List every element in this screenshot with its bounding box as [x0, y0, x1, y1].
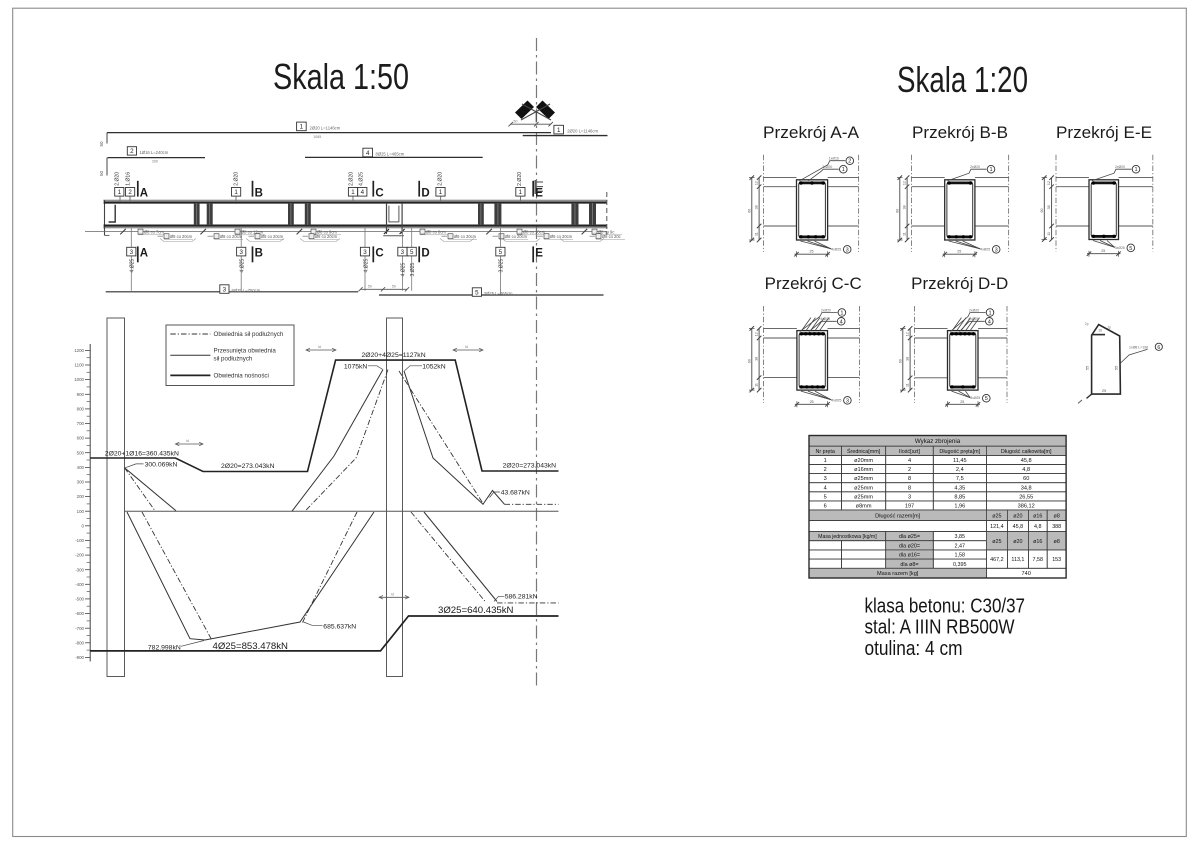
svg-text:dla ø8=: dla ø8=: [900, 562, 918, 568]
svg-text:38: 38: [1047, 205, 1051, 209]
svg-text:1.Ø16: 1.Ø16: [125, 172, 131, 186]
svg-text:1: 1: [351, 189, 355, 196]
svg-text:3: 3: [824, 476, 827, 482]
svg-text:klasa betonu: C30/37: klasa betonu: C30/37: [865, 594, 1026, 617]
svg-text:153: 153: [1052, 557, 1061, 563]
svg-text:2: 2: [848, 159, 851, 165]
svg-text:Id: Id: [465, 345, 468, 349]
svg-text:11: 11: [755, 383, 759, 387]
svg-text:38: 38: [903, 205, 907, 209]
svg-text:8Ø25 L=750cm: 8Ø25 L=750cm: [232, 288, 261, 293]
svg-text:dla ø16=: dla ø16=: [899, 553, 920, 559]
svg-text:1085: 1085: [313, 135, 321, 139]
svg-text:A: A: [140, 187, 148, 199]
svg-text:3: 3: [239, 249, 243, 256]
svg-text:4xØ25: 4xØ25: [831, 247, 841, 251]
svg-text:4: 4: [361, 189, 365, 196]
svg-text:2xØ20: 2xØ20: [969, 308, 979, 312]
svg-text:121,4: 121,4: [990, 524, 1004, 530]
svg-text:2xØ20: 2xØ20: [821, 308, 831, 312]
svg-text:Ø8 co 20cm: Ø8 co 20cm: [505, 234, 528, 239]
svg-text:500: 500: [77, 450, 85, 455]
svg-text:2: 2: [824, 467, 827, 473]
svg-text:5: 5: [824, 495, 827, 501]
svg-text:1xØ16: 1xØ16: [829, 157, 839, 161]
svg-text:400: 400: [77, 465, 85, 470]
svg-text:25: 25: [960, 400, 964, 404]
svg-text:2xØ20: 2xØ20: [970, 165, 980, 169]
svg-text:55: 55: [1086, 366, 1090, 370]
svg-text:11: 11: [1047, 232, 1051, 236]
svg-text:1: 1: [439, 189, 443, 196]
svg-text:12: 12: [903, 181, 907, 185]
svg-text:197: 197: [905, 504, 914, 510]
svg-text:4,35: 4,35: [954, 485, 965, 491]
svg-text:45,8: 45,8: [1021, 458, 1032, 464]
svg-text:Ø8 co 20cm: Ø8 co 20cm: [170, 234, 193, 239]
svg-text:Skala 1:50: Skala 1:50: [273, 56, 409, 97]
svg-text:4,8: 4,8: [1034, 524, 1042, 530]
svg-text:1075kN: 1075kN: [344, 363, 368, 370]
svg-text:ø25: ø25: [992, 513, 1001, 519]
svg-text:4,8: 4,8: [1022, 467, 1030, 473]
svg-text:3.Ø25: 3.Ø25: [499, 258, 505, 272]
svg-text:-200: -200: [75, 553, 84, 558]
svg-text:Masa jednostkowa [kg/m]: Masa jednostkowa [kg/m]: [818, 534, 877, 540]
svg-text:Przekrój D-D: Przekrój D-D: [911, 275, 1008, 293]
svg-text:ø8mm: ø8mm: [856, 504, 872, 510]
svg-text:1200: 1200: [74, 348, 84, 353]
svg-text:1: 1: [824, 458, 827, 464]
svg-text:10: 10: [1098, 329, 1102, 333]
svg-text:55: 55: [1114, 366, 1118, 370]
svg-text:4Ø25=853.478kN: 4Ø25=853.478kN: [213, 641, 289, 652]
svg-text:2xØ20: 2xØ20: [822, 165, 832, 169]
svg-text:7,5: 7,5: [956, 476, 964, 482]
svg-text:3: 3: [223, 286, 227, 293]
svg-text:Obwiednia sił podłużnych: Obwiednia sił podłużnych: [214, 331, 284, 338]
svg-text:8,85: 8,85: [954, 495, 965, 501]
svg-text:Id: Id: [391, 593, 394, 597]
svg-text:Ø8 co 7cm: Ø8 co 7cm: [144, 230, 164, 235]
svg-text:4xØ25: 4xØ25: [968, 317, 978, 321]
svg-text:ø25mm: ø25mm: [854, 495, 873, 501]
svg-text:3Ø25 L=465cm: 3Ø25 L=465cm: [484, 291, 513, 296]
svg-text:38: 38: [755, 205, 759, 209]
svg-text:2Ø20 L=1146cm: 2Ø20 L=1146cm: [310, 125, 341, 130]
svg-text:-300: -300: [75, 567, 84, 572]
svg-text:685.637kN: 685.637kN: [323, 623, 356, 630]
svg-text:1000: 1000: [74, 377, 84, 382]
svg-text:34,8: 34,8: [1021, 485, 1032, 491]
svg-text:467,2: 467,2: [990, 557, 1004, 563]
svg-text:4xØ25: 4xØ25: [831, 398, 841, 402]
svg-text:Przekrój C-C: Przekrój C-C: [765, 275, 862, 293]
svg-text:-500: -500: [75, 597, 84, 602]
svg-text:300.069kN: 300.069kN: [145, 461, 178, 468]
svg-text:2.Ø20: 2.Ø20: [349, 172, 355, 186]
svg-text:Ø8 co 8cm: Ø8 co 8cm: [426, 230, 446, 235]
svg-text:4xØ25: 4xØ25: [820, 317, 830, 321]
svg-text:Długość pręta[m]: Długość pręta[m]: [939, 449, 980, 455]
svg-text:Nr pręta: Nr pręta: [815, 449, 834, 455]
svg-text:50: 50: [368, 284, 372, 288]
svg-text:50: 50: [514, 120, 518, 124]
svg-text:8Ø25 L=465cm: 8Ø25 L=465cm: [376, 151, 405, 156]
svg-text:1: 1: [234, 189, 238, 196]
svg-text:4.Ø25: 4.Ø25: [130, 258, 136, 272]
svg-text:2p: 2p: [1108, 325, 1112, 329]
svg-text:6: 6: [1157, 345, 1160, 351]
svg-text:800: 800: [77, 407, 85, 412]
svg-text:3: 3: [995, 247, 998, 253]
svg-text:Przekrój E-E: Przekrój E-E: [1056, 124, 1152, 142]
svg-text:900: 900: [77, 392, 85, 397]
svg-text:45,8: 45,8: [1013, 524, 1024, 530]
svg-text:3: 3: [130, 249, 134, 256]
svg-text:1: 1: [300, 124, 304, 131]
svg-text:60: 60: [898, 359, 902, 363]
svg-text:ø16: ø16: [1033, 539, 1042, 545]
svg-text:E: E: [535, 187, 543, 199]
svg-text:300: 300: [77, 480, 85, 485]
svg-text:5: 5: [985, 396, 988, 402]
svg-text:3xØ25: 3xØ25: [970, 396, 980, 400]
svg-text:4.Ø25: 4.Ø25: [401, 262, 407, 276]
svg-text:3xØ25: 3xØ25: [1115, 246, 1125, 250]
svg-text:2Ø20+1Ø16=360.435kN: 2Ø20+1Ø16=360.435kN: [105, 451, 179, 458]
svg-text:Długość całkowita[m]: Długość całkowita[m]: [1001, 449, 1052, 455]
svg-text:60: 60: [1023, 476, 1029, 482]
svg-text:Obwiednia nośności: Obwiednia nośności: [214, 373, 269, 380]
svg-text:11,45: 11,45: [953, 458, 967, 464]
svg-text:1: 1: [519, 189, 523, 196]
svg-text:700: 700: [77, 421, 85, 426]
svg-text:B: B: [255, 187, 263, 199]
svg-text:4.Ø25: 4.Ø25: [359, 172, 365, 186]
svg-text:25: 25: [1102, 389, 1106, 393]
svg-text:Średnica[mm]: Średnica[mm]: [847, 447, 881, 455]
svg-text:0,395: 0,395: [953, 562, 967, 568]
svg-text:1: 1: [988, 311, 991, 317]
svg-text:11: 11: [906, 383, 910, 387]
svg-text:Wykaz zbrojenia: Wykaz zbrojenia: [915, 438, 961, 445]
svg-text:200: 200: [77, 494, 85, 499]
svg-text:2: 2: [908, 467, 911, 473]
svg-text:E: E: [535, 247, 543, 259]
svg-text:dla ø25=: dla ø25=: [899, 534, 920, 540]
svg-text:Długość razem[m]: Długość razem[m]: [875, 513, 921, 519]
svg-text:386,12: 386,12: [1018, 504, 1035, 510]
svg-text:ø8: ø8: [1054, 513, 1060, 519]
svg-text:3: 3: [846, 398, 849, 404]
svg-text:ø16: ø16: [1033, 513, 1042, 519]
svg-text:2Ø20+4Ø25=1127kN: 2Ø20+4Ø25=1127kN: [362, 352, 426, 359]
svg-text:25: 25: [1101, 249, 1105, 253]
svg-text:113,1: 113,1: [1011, 557, 1024, 563]
svg-text:D: D: [421, 187, 429, 199]
svg-text:-800: -800: [75, 640, 84, 645]
svg-text:1: 1: [118, 189, 122, 196]
svg-text:3: 3: [363, 249, 367, 256]
svg-text:Przesunięta obwiednia: Przesunięta obwiednia: [214, 348, 277, 355]
svg-text:2.Ø20: 2.Ø20: [437, 172, 443, 186]
svg-text:-100: -100: [75, 538, 84, 543]
svg-text:A: A: [140, 247, 148, 259]
svg-text:D: D: [421, 247, 429, 259]
svg-text:12: 12: [755, 332, 759, 336]
svg-text:25: 25: [957, 250, 961, 254]
svg-text:1Ø16 L=240cm: 1Ø16 L=240cm: [140, 150, 169, 155]
svg-text:C: C: [375, 187, 383, 199]
svg-text:2Ø20 L=1146cm: 2Ø20 L=1146cm: [567, 128, 598, 133]
svg-text:4.Ø25: 4.Ø25: [240, 258, 246, 272]
svg-text:11: 11: [755, 232, 759, 236]
svg-text:-900: -900: [75, 655, 84, 660]
svg-text:60: 60: [1040, 209, 1044, 213]
svg-text:2p: 2p: [1085, 322, 1089, 326]
svg-text:Przekrój A-A: Przekrój A-A: [763, 124, 859, 142]
svg-text:Ø8 co 20cm: Ø8 co 20cm: [550, 234, 573, 239]
svg-text:2: 2: [128, 189, 132, 196]
svg-text:1100: 1100: [75, 363, 85, 368]
svg-text:1: 1: [989, 167, 992, 173]
svg-text:1: 1: [842, 167, 845, 173]
svg-text:1,58: 1,58: [955, 553, 966, 559]
svg-text:Ø8 co 20cm: Ø8 co 20cm: [220, 234, 243, 239]
svg-text:4: 4: [840, 319, 843, 325]
svg-text:60: 60: [747, 209, 751, 213]
svg-text:4.Ø25: 4.Ø25: [363, 258, 369, 272]
svg-text:1: 1: [557, 127, 561, 134]
svg-text:740: 740: [1022, 571, 1031, 577]
svg-text:Ø8 co 20cm: Ø8 co 20cm: [315, 234, 338, 239]
svg-text:25: 25: [810, 250, 814, 254]
svg-text:Id: Id: [186, 439, 189, 443]
svg-text:2xØ20: 2xØ20: [1115, 165, 1125, 169]
svg-text:3.Ø25: 3.Ø25: [410, 262, 416, 276]
svg-text:Ø8 co 20cm: Ø8 co 20cm: [261, 234, 284, 239]
svg-text:100: 100: [77, 509, 85, 514]
svg-text:2.Ø20: 2.Ø20: [233, 172, 239, 186]
svg-text:11: 11: [903, 232, 907, 236]
svg-text:3: 3: [908, 495, 911, 501]
svg-text:12: 12: [906, 332, 910, 336]
svg-text:ø8: ø8: [1054, 539, 1060, 545]
svg-text:sił podłużnych: sił podłużnych: [214, 356, 253, 363]
svg-text:Masa razem [kg]: Masa razem [kg]: [877, 571, 919, 577]
svg-text:8: 8: [908, 485, 911, 491]
svg-text:Ø8 co 20c: Ø8 co 20c: [602, 234, 621, 239]
svg-text:2,4: 2,4: [956, 467, 964, 473]
svg-text:586.281kN: 586.281kN: [505, 594, 538, 601]
svg-text:60: 60: [895, 209, 899, 213]
svg-text:4: 4: [824, 485, 827, 491]
svg-text:4: 4: [366, 150, 370, 157]
svg-text:2,47: 2,47: [955, 543, 966, 549]
svg-text:12: 12: [1047, 181, 1051, 185]
svg-text:50: 50: [99, 141, 104, 147]
svg-text:782.998kN: 782.998kN: [148, 644, 181, 651]
svg-text:3Ø25=640.435kN: 3Ø25=640.435kN: [438, 605, 514, 616]
svg-text:38: 38: [755, 357, 759, 361]
svg-text:25: 25: [810, 400, 814, 404]
svg-text:2Ø20=273.043kN: 2Ø20=273.043kN: [221, 463, 275, 470]
svg-text:ø25: ø25: [992, 539, 1001, 545]
svg-text:4xØ25: 4xØ25: [980, 247, 990, 251]
svg-text:ø16mm: ø16mm: [854, 467, 873, 473]
svg-text:Skala 1:20: Skala 1:20: [897, 59, 1028, 100]
svg-text:5: 5: [410, 249, 414, 256]
svg-text:12: 12: [755, 181, 759, 185]
svg-text:5: 5: [1129, 246, 1132, 252]
svg-text:50: 50: [392, 284, 396, 288]
svg-text:Ilość[szt]: Ilość[szt]: [899, 449, 920, 455]
svg-text:1052kN: 1052kN: [422, 363, 446, 370]
svg-text:600: 600: [77, 436, 85, 441]
svg-text:4: 4: [988, 319, 991, 325]
svg-text:Przekrój B-B: Przekrój B-B: [912, 124, 1008, 142]
svg-text:5: 5: [499, 249, 503, 256]
svg-text:Id: Id: [318, 345, 321, 349]
svg-text:3: 3: [401, 249, 405, 256]
svg-text:2.Ø20: 2.Ø20: [114, 172, 120, 186]
svg-text:7,58: 7,58: [1033, 557, 1044, 563]
svg-text:B: B: [255, 247, 263, 259]
svg-text:1,96: 1,96: [954, 504, 965, 510]
svg-text:C: C: [375, 247, 383, 259]
svg-text:43.687kN: 43.687kN: [501, 490, 530, 497]
svg-text:38: 38: [906, 357, 910, 361]
svg-text:3,85: 3,85: [955, 534, 966, 540]
svg-text:2.Ø20: 2.Ø20: [517, 172, 523, 186]
svg-text:60: 60: [747, 359, 751, 363]
svg-text:50: 50: [99, 170, 104, 176]
svg-text:ø20: ø20: [1013, 513, 1022, 519]
svg-text:1: 1: [840, 311, 843, 317]
svg-text:3: 3: [846, 247, 849, 253]
svg-text:ø20mm: ø20mm: [854, 458, 873, 464]
svg-text:ø20: ø20: [1013, 539, 1022, 545]
svg-text:-700: -700: [75, 626, 84, 631]
svg-text:4: 4: [908, 458, 911, 464]
svg-text:8: 8: [908, 476, 911, 482]
svg-text:ø25mm: ø25mm: [854, 485, 873, 491]
svg-text:2Ø20=273.043kN: 2Ø20=273.043kN: [503, 463, 557, 470]
svg-text:1xØ8 L=196: 1xØ8 L=196: [1129, 346, 1148, 350]
svg-text:Ø8 co 20cm: Ø8 co 20cm: [454, 234, 477, 239]
svg-text:-600: -600: [75, 611, 84, 616]
svg-text:otulina: 4 cm: otulina: 4 cm: [865, 637, 963, 660]
svg-text:6: 6: [824, 504, 827, 510]
svg-text:200: 200: [152, 159, 158, 163]
svg-text:stal: A IIIN RB500W: stal: A IIIN RB500W: [865, 616, 1016, 639]
svg-text:2: 2: [130, 148, 134, 155]
svg-text:-400: -400: [75, 582, 84, 587]
svg-text:ø25mm: ø25mm: [854, 476, 873, 482]
svg-text:5: 5: [475, 289, 479, 296]
svg-text:388: 388: [1052, 524, 1061, 530]
svg-text:dla ø20=: dla ø20=: [899, 543, 920, 549]
svg-text:1: 1: [1134, 167, 1137, 173]
svg-text:26,55: 26,55: [1019, 495, 1033, 501]
